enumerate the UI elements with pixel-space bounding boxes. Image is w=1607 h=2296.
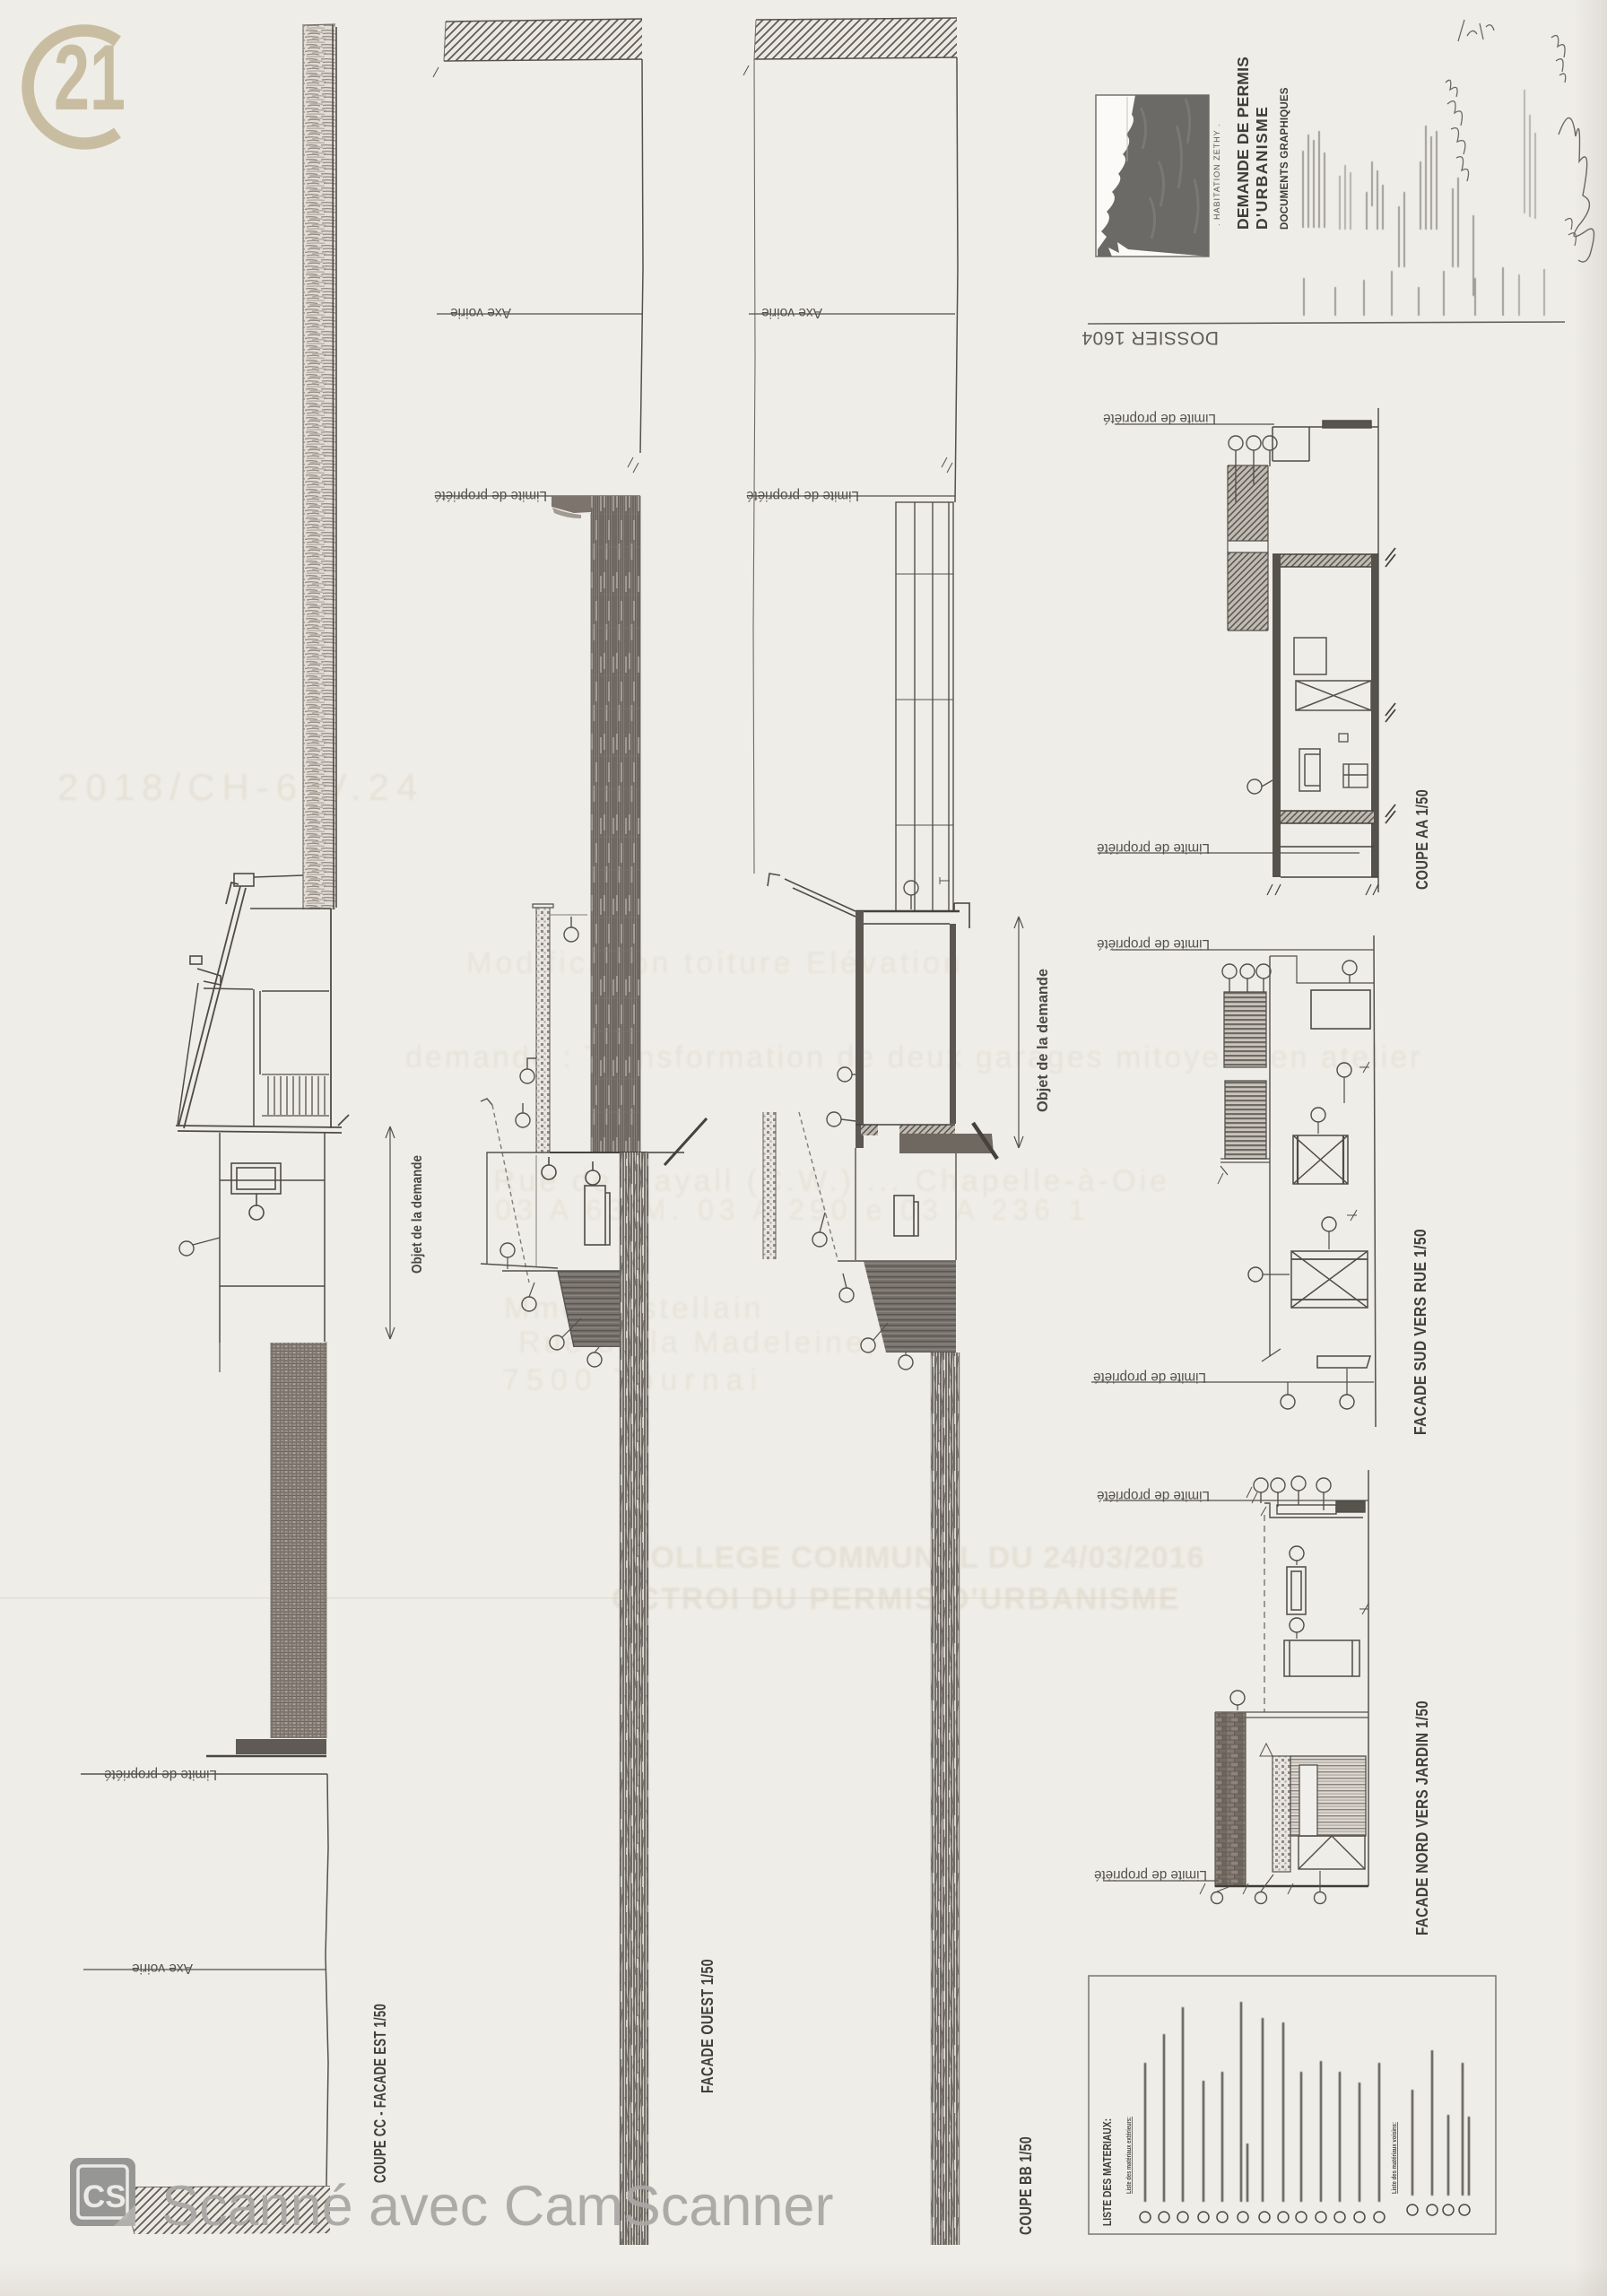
svg-text:Scanné avec CamScanner: Scanné avec CamScanner [161,2175,833,2238]
svg-text:DEMANDE DE PERMIS: DEMANDE DE PERMIS [1234,57,1252,230]
svg-text:CS: CS [83,2179,126,2214]
svg-text:COLLEGE COMMUNAL DU 24/03/2016: COLLEGE COMMUNAL DU 24/03/2016 [628,1541,1204,1575]
svg-text:LISTE DES MATERIAUX:: LISTE DES MATERIAUX: [1100,2118,1114,2226]
svg-text:COUPE BB 1/50: COUPE BB 1/50 [1017,2136,1035,2235]
svg-text:Axe voirie: Axe voirie [132,1961,193,1976]
svg-text:Axe voirie: Axe voirie [761,305,822,320]
svg-text:COUPE CC - FACADE EST 1/50: COUPE CC - FACADE EST 1/50 [371,2004,389,2183]
svg-text:FACADE SUD VERS RUE 1/50: FACADE SUD VERS RUE 1/50 [1412,1229,1429,1435]
svg-text:FACADE OUEST 1/50: FACADE OUEST 1/50 [699,1959,717,2093]
svg-text:D'URBANISME: D'URBANISME [1253,106,1271,230]
svg-text:. HABITATION ZETHY .: . HABITATION ZETHY . [1212,123,1221,226]
svg-text:2018/CH-6.V.24: 2018/CH-6.V.24 [57,766,424,808]
svg-text:Objet de la demande: Objet de la demande [410,1155,425,1274]
svg-text:21: 21 [54,26,126,130]
svg-text:Liste des matériaux extérieurs: Liste des matériaux extérieurs: [1125,2117,1133,2194]
svg-text:Limite de propriété: Limite de propriété [1094,1867,1207,1883]
svg-text:DOSSIER 1604: DOSSIER 1604 [1081,327,1219,348]
svg-text:COUPE AA 1/50: COUPE AA 1/50 [1413,789,1431,890]
svg-text:DOCUMENTS GRAPHIQUES: DOCUMENTS GRAPHIQUES [1280,87,1290,230]
svg-text:Objet de la demande: Objet de la demande [1035,969,1051,1112]
svg-text:Axe voirie: Axe voirie [450,305,511,320]
svg-text:OCTROI DU PERMIS D'URBANISME: OCTROI DU PERMIS D'URBANISME [612,1582,1181,1616]
svg-text:FACADE NORD VERS JARDIN 1/50: FACADE NORD VERS JARDIN 1/50 [1413,1700,1431,1935]
svg-text:Liste des matériaux voisins:: Liste des matériaux voisins: [1390,2122,1398,2194]
